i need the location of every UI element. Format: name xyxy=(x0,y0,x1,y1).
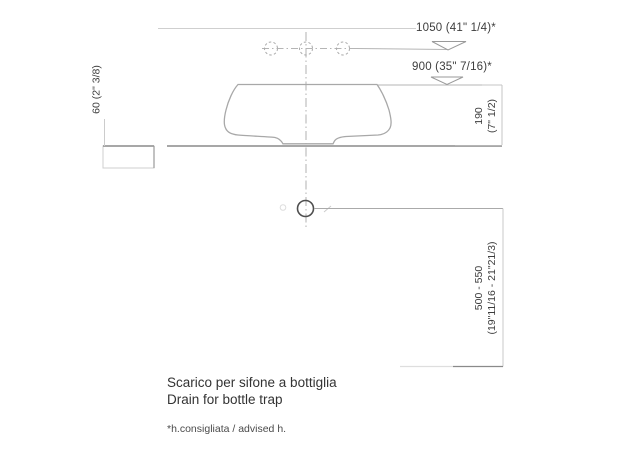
caption-footnote: *h.consigliata / advised h. xyxy=(167,423,286,435)
dim-label-500-550-mm: 500 - 550 xyxy=(473,208,486,368)
drain-mark-left xyxy=(280,205,286,211)
arrow-900 xyxy=(431,77,463,85)
faucet-level-line xyxy=(356,49,447,50)
dim-label-190: 190 (7" 1/2) xyxy=(473,56,499,176)
dim-label-500-550-in: (19"11/16 - 21"21/3) xyxy=(486,208,499,368)
dim-label-190-in: (7" 1/2) xyxy=(486,56,499,176)
basin-profile xyxy=(224,85,391,144)
caption-english: Drain for bottle trap xyxy=(167,392,283,407)
counter-slab-section xyxy=(103,146,154,168)
caption-italian: Scarico per sifone a bottiglia xyxy=(167,375,337,390)
arrow-1050 xyxy=(432,42,466,51)
technical-drawing-canvas: 1050 (41" 1/4)* 900 (35" 7/16)* 60 (2" 3… xyxy=(0,0,640,452)
dim-label-1050: 1050 (41" 1/4)* xyxy=(416,22,496,34)
dim-label-500-550: 500 - 550 (19"11/16 - 21"21/3) xyxy=(473,208,499,368)
dim-label-60: 60 (2" 3/8) xyxy=(91,60,104,120)
dim-label-190-mm: 190 xyxy=(473,56,486,176)
